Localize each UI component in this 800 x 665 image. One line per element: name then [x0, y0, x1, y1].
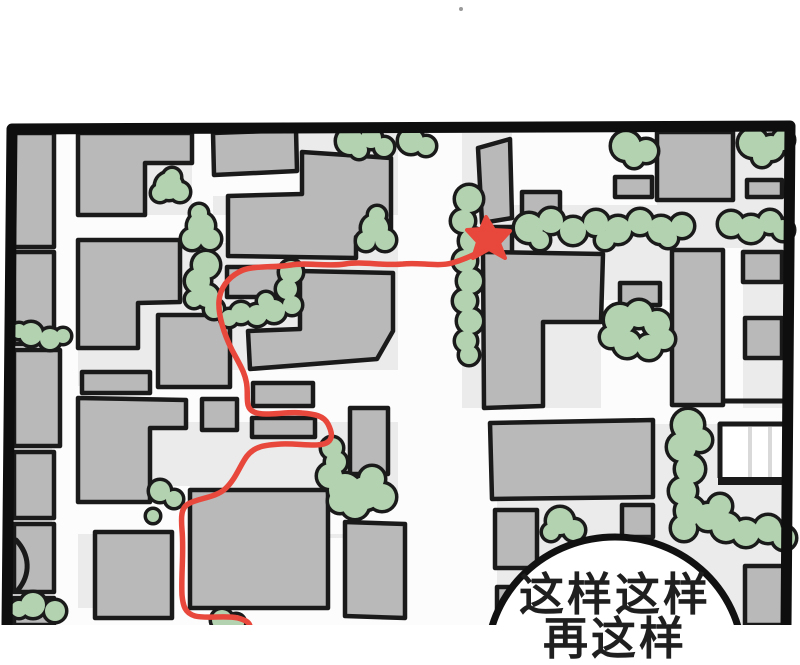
building: [345, 522, 405, 618]
road: [723, 248, 743, 408]
building: [490, 420, 653, 499]
building: [82, 372, 150, 393]
speech-bubble-text-line1: 这样这样: [475, 572, 755, 617]
building: [478, 139, 512, 223]
building: [190, 490, 328, 608]
building: [495, 510, 537, 568]
building: [14, 524, 54, 592]
building: [745, 318, 782, 358]
building: [622, 505, 653, 537]
building: [747, 180, 782, 197]
building: [158, 315, 230, 387]
building: [202, 399, 237, 430]
map-illustration: [0, 0, 800, 625]
building: [213, 130, 297, 175]
building: [253, 383, 313, 406]
building: [672, 250, 723, 405]
building: [657, 132, 733, 200]
building: [95, 532, 172, 618]
building: [14, 350, 60, 446]
comic-panel: 这样这样 再这样: [0, 0, 800, 625]
building: [615, 177, 652, 197]
building: [252, 418, 315, 437]
page-speck: [459, 7, 463, 11]
road: [328, 538, 345, 625]
building: [14, 133, 54, 247]
road: [398, 133, 462, 625]
building: [743, 252, 782, 282]
speech-bubble-text-line2-partial: 再这样: [475, 616, 755, 661]
building: [14, 452, 54, 518]
